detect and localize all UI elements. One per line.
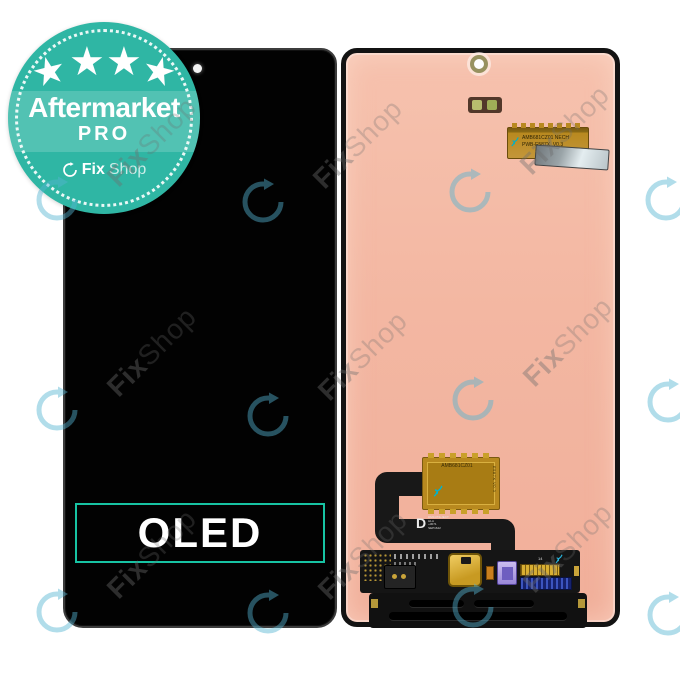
bracket-slot — [474, 600, 534, 608]
star-icon: ★ — [106, 42, 142, 82]
driver-ic-flex: AMB681CZ01 E587X V0.3 — [422, 457, 500, 510]
product-photo: OLED AMB681CZ01 NECH PWB-E587X V0.3 AMB6… — [0, 0, 680, 680]
bracket-tab — [578, 599, 585, 608]
gold-module — [448, 553, 482, 587]
logo-text-bold: Fix — [82, 161, 105, 179]
bottom-bracket — [369, 593, 587, 628]
d-micro-text: DM3-PNLJECT HLA +3071 SEP1622 — [428, 516, 449, 530]
logo-text-light: Shop — [109, 161, 146, 179]
pcb-number: 14 — [538, 556, 542, 561]
flex-ribbon — [346, 53, 615, 622]
bottom-pcb: 14 — [360, 550, 580, 593]
pcb-logo-icon — [554, 554, 564, 565]
rotate-icon — [62, 162, 78, 178]
flex-d-marking: D DM3-PNLJECT HLA +3071 SEP1622 — [416, 516, 449, 530]
bracket-slot — [389, 612, 567, 621]
badge-subtitle: PRO — [8, 123, 200, 146]
watermark-rotate-icon — [644, 591, 680, 639]
purple-component — [497, 561, 517, 585]
ic-label: AMB681CZ01 — [423, 463, 491, 469]
d-letter: D — [416, 516, 426, 530]
pcb-ticks — [394, 554, 440, 559]
edge-pad — [574, 566, 579, 576]
display-back: AMB681CZ01 NECH PWB-E587X V0.3 AMB681CZ0… — [341, 48, 620, 627]
badge-title: Aftermarket — [8, 92, 200, 124]
star-icon: ★ — [69, 42, 105, 82]
front-camera-dot — [193, 64, 202, 73]
orange-connector — [486, 566, 494, 580]
aftermarket-pro-badge: ★★★★ Aftermarket PRO Fix Shop — [8, 22, 200, 214]
watermark-rotate-icon — [642, 176, 680, 224]
board-connector-socket — [520, 564, 560, 576]
ic-logo-icon — [432, 485, 444, 499]
watermark-rotate-icon — [644, 378, 680, 426]
back-panel-surface: AMB681CZ01 NECH PWB-E587X V0.3 AMB681CZ0… — [346, 53, 615, 622]
pcb-component — [384, 565, 416, 589]
oled-label-box: OLED — [75, 503, 325, 563]
badge-shop-logo: Fix Shop — [8, 161, 200, 179]
ic-side-label: E587X V0.3 — [492, 466, 497, 505]
oled-label: OLED — [138, 509, 263, 557]
bracket-slot — [409, 600, 464, 608]
blue-ribbed-connector — [520, 577, 572, 590]
bracket-tab — [371, 599, 378, 608]
